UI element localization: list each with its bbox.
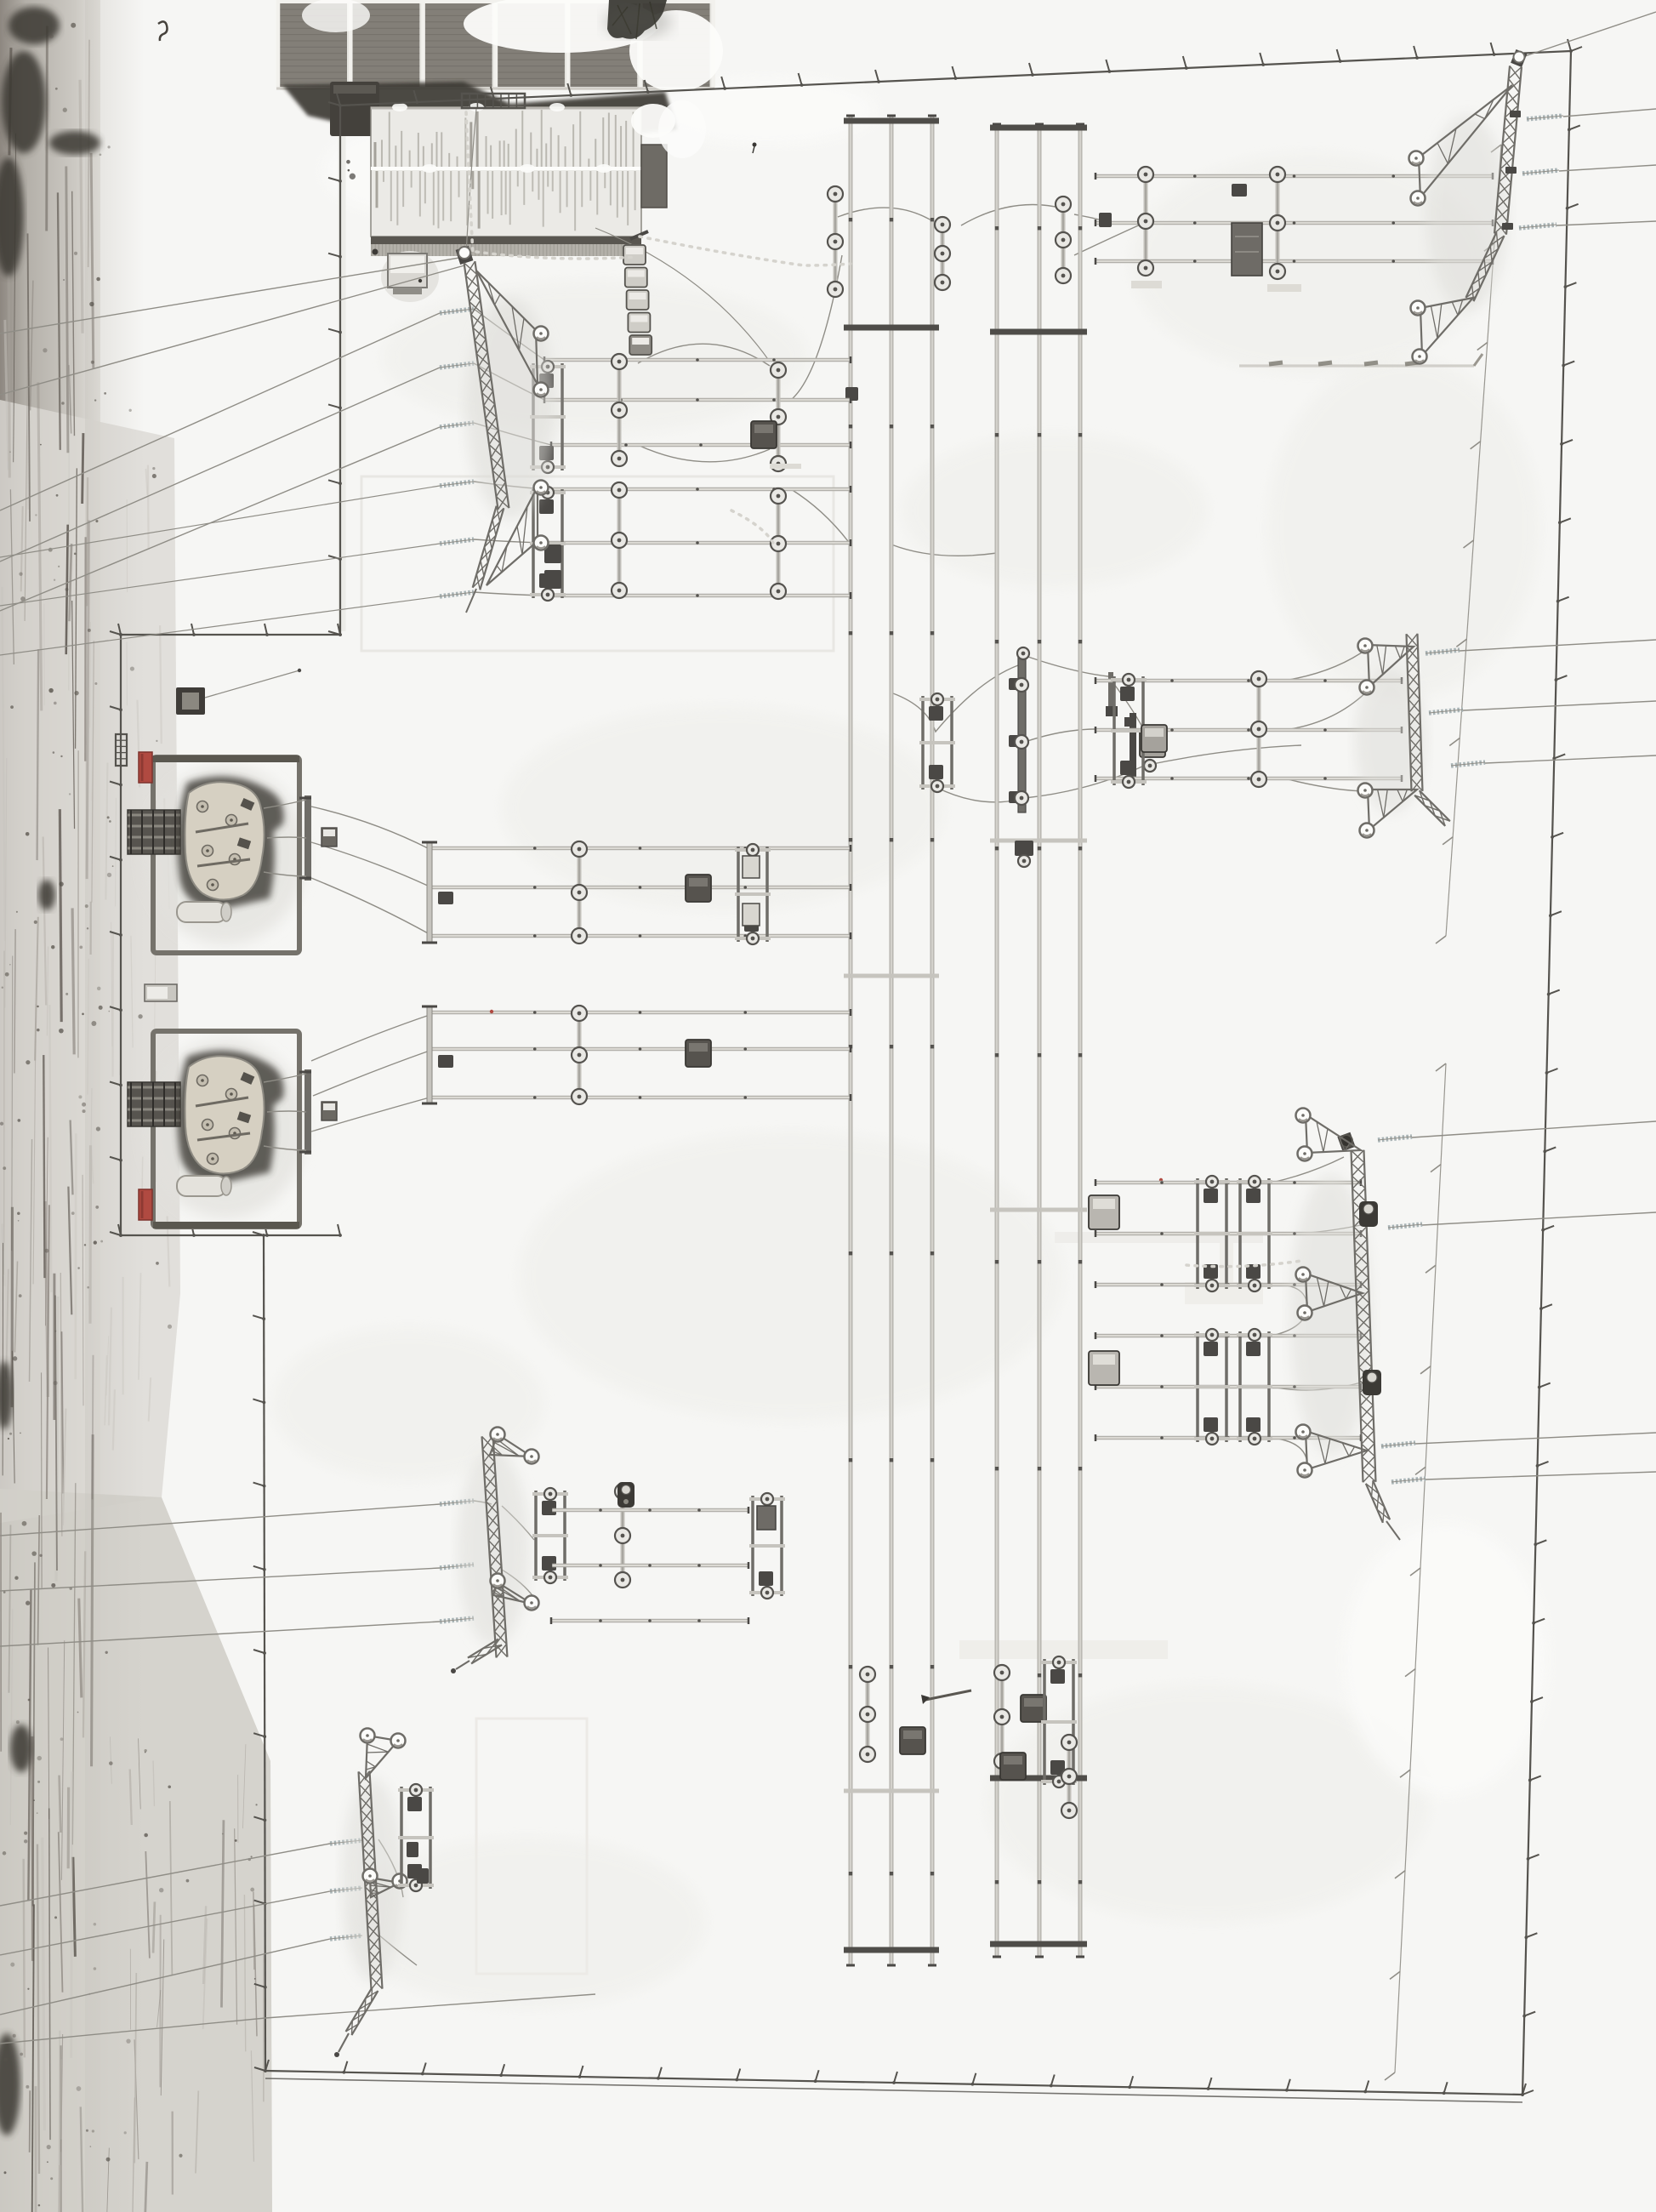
utility-cabinet: [381, 251, 439, 302]
scene-canvas: [0, 0, 1656, 2212]
substation-aerial-photo: [0, 0, 1656, 2212]
